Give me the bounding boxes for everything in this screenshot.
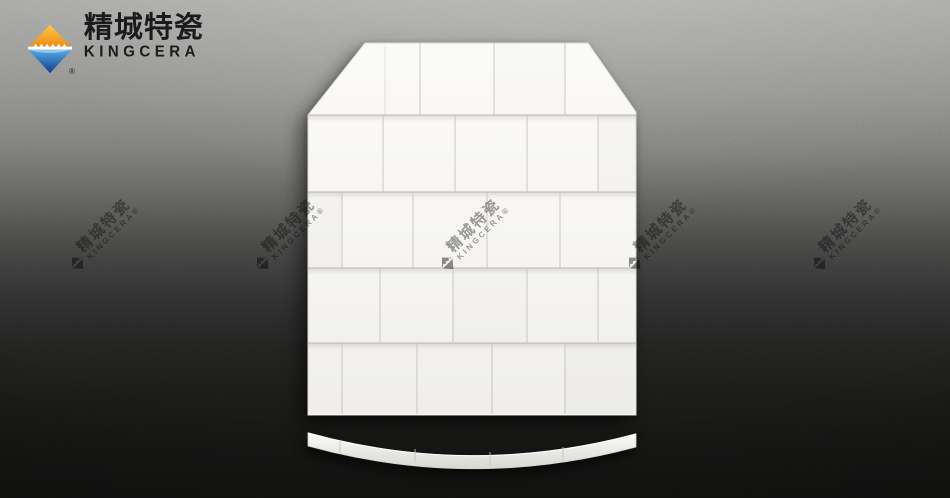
kingcera-logo: ® 精城特瓷 KINGCERA	[27, 13, 204, 74]
registered-mark: ®	[69, 67, 75, 76]
product-photo-stage: 精城特瓷KINGCERA® 精城特瓷KINGCERA® 精城特瓷KINGCERA…	[0, 0, 950, 498]
curved-ceramic-strip	[0, 0, 950, 498]
kingcera-diamond-icon	[27, 24, 73, 74]
logo-company-name-cn: 精城特瓷	[84, 13, 204, 43]
logo-text-block: 精城特瓷 KINGCERA	[84, 13, 204, 59]
logo-company-name-en: KINGCERA	[84, 44, 204, 60]
strip-body	[308, 433, 636, 469]
